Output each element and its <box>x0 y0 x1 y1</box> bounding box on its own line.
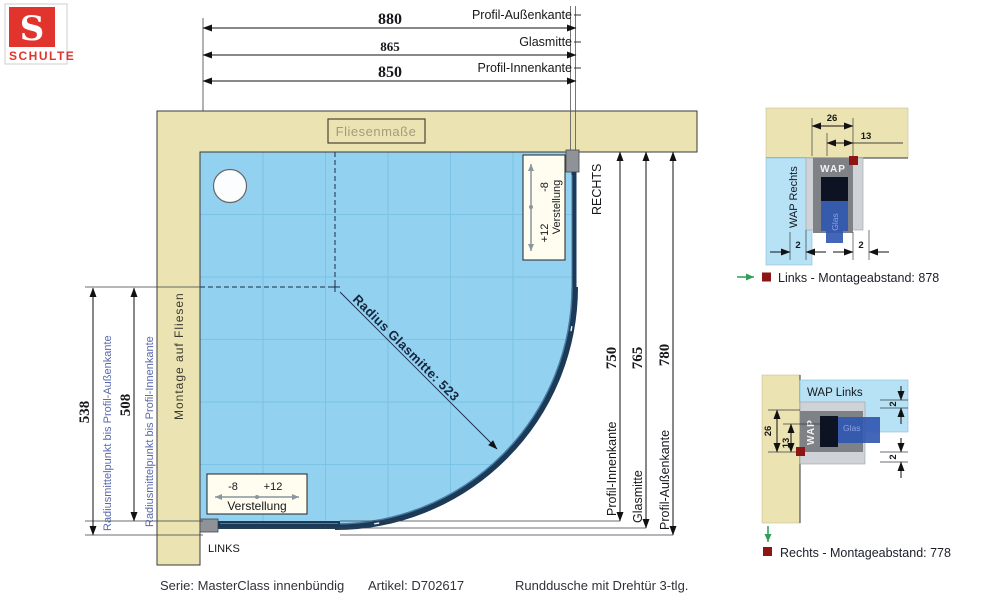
detail-bottom-profile-label: WAP <box>806 419 817 445</box>
footer-product: Runddusche mit Drehtür 3-tlg. <box>515 578 688 593</box>
adjust-minus-v: -8 <box>539 182 551 192</box>
adjust-box-right: -8 +12 Verstellung <box>523 155 565 260</box>
dim-label-radius-inner: Radiusmittelpunkt bis Profil-Innenkante <box>144 336 156 527</box>
detail-top-ref-square <box>849 156 858 165</box>
detail-wap-links: WAP Links WAP Glas 26 13 2 2 Rechts - Mo… <box>762 375 951 560</box>
footer-series: Serie: MasterClass innenbündig <box>160 578 344 593</box>
dim-value-508: 508 <box>118 394 134 417</box>
dim-label-radius-outer: Radiusmittelpunkt bis Profil-Außenkante <box>102 335 114 531</box>
dim-label-glass-right: Glasmitte <box>631 470 645 523</box>
dim-value-850: 850 <box>378 64 402 81</box>
detail-bottom-caption: Rechts - Montageabstand: 778 <box>780 546 951 560</box>
detail-bottom-glass-dark <box>820 416 838 447</box>
detail-top-gap-right-value: 2 <box>858 240 863 251</box>
drain-circle <box>214 170 247 203</box>
dim-value-538: 538 <box>77 401 93 424</box>
shower-tray: Radius Glasmitte: 523 <box>200 152 575 527</box>
dim-label-inner-top: Profil-Innenkante <box>477 61 572 75</box>
dim-value-865: 865 <box>380 39 400 54</box>
footer-article: Artikel: D702617 <box>368 578 464 593</box>
logo-brand-name: SCHULTE <box>9 49 75 63</box>
detail-top-profile-label: WAP <box>820 164 846 175</box>
adjust-label-v: Verstellung <box>551 180 563 234</box>
dim-label-glass-top: Glasmitte <box>519 35 572 49</box>
technical-drawing-svg: Radius Glasmitte: 523 Fliesenmaße Montag… <box>0 0 1000 600</box>
detail-top-glass-label: Glas <box>830 213 840 230</box>
detail-wap-rechts: WAP Glas WAP Rechts 26 13 2 2 Links - Mo… <box>737 108 939 285</box>
detail-bottom-gap-bottom-value: 2 <box>888 454 899 459</box>
dim-label-outer-top: Profil-Außenkante <box>472 8 572 22</box>
top-label-ticks <box>574 15 581 68</box>
dim-value-780: 780 <box>657 344 673 367</box>
detail-bottom-glass-label: Glas <box>843 423 860 433</box>
top-dimensions: 880 865 850 Profil-Außenkante Glasmitte … <box>203 8 581 111</box>
dim-label-outer-right: Profil-Außenkante <box>658 430 672 530</box>
detail-top-zone-label: WAP Rechts <box>788 166 800 228</box>
footer-info: Serie: MasterClass innenbündig Artikel: … <box>160 578 688 593</box>
logo-letter-icon: S <box>20 9 45 49</box>
detail-top-glass-dark <box>821 177 848 201</box>
detail-bottom-caption-square-icon <box>763 547 772 556</box>
adjust-dot-vertical <box>529 205 533 209</box>
dim-value-750: 750 <box>604 347 620 370</box>
tile-note-label: Fliesenmaße <box>336 124 417 139</box>
adjust-plus-v: +12 <box>539 224 551 243</box>
wall-profile-top <box>566 150 579 172</box>
dim-label-inner-right: Profil-Innenkante <box>605 421 619 516</box>
detail-bottom-zone-label: WAP Links <box>807 387 863 399</box>
adjust-box-bottom: -8 +12 Verstellung <box>207 474 307 514</box>
dim-value-880: 880 <box>378 11 402 28</box>
detail-top-gap-left-value: 2 <box>795 240 800 251</box>
brand-logo: S SCHULTE <box>5 4 75 64</box>
side-label-links: LINKS <box>208 543 240 555</box>
drawing-canvas: Radius Glasmitte: 523 Fliesenmaße Montag… <box>0 0 1000 600</box>
detail-bottom-dim-26-value: 26 <box>763 426 774 437</box>
adjust-minus-h: -8 <box>228 481 238 493</box>
detail-top-dim-26-value: 26 <box>827 113 838 124</box>
adjust-label-h: Verstellung <box>227 499 286 513</box>
detail-top-caption-square-icon <box>762 273 771 282</box>
side-label-rechts: RECHTS <box>590 164 604 215</box>
detail-bottom-gap-top-value: 2 <box>888 401 899 406</box>
detail-top-caption: Links - Montageabstand: 878 <box>778 271 939 285</box>
detail-top-dim-13-value: 13 <box>861 131 872 142</box>
dim-value-765: 765 <box>630 347 646 370</box>
detail-top-glass-tongue <box>826 231 843 243</box>
detail-bottom-dim-13-value: 13 <box>781 438 792 449</box>
mount-note-label: Montage auf Fliesen <box>172 292 186 420</box>
detail-bottom-ref-square <box>796 447 805 456</box>
adjust-plus-h: +12 <box>264 481 283 493</box>
